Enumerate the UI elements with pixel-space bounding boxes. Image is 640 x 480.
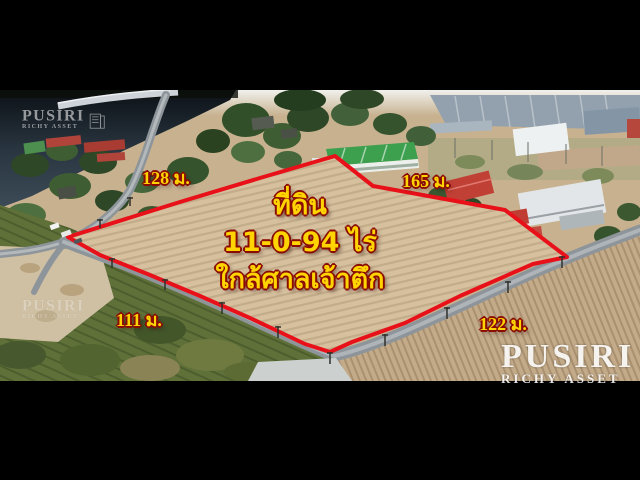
letterbox-bottom (0, 381, 640, 480)
letterbox-top (0, 0, 640, 90)
industrial-buildings (428, 95, 640, 184)
plot-caption-line2: 11-0-94 ไร่ (150, 224, 450, 261)
watermark-text: PUSIRI RICHY ASSET (501, 340, 634, 385)
watermark-tagline: RICHY ASSET (22, 123, 85, 129)
watermark-bottom-right: PUSIRI RICHY ASSET (501, 340, 640, 385)
plot-caption-line1: ที่ดิน (150, 187, 450, 224)
measurement-label-bottom-right: 122 ม. (479, 309, 527, 338)
measurement-label-bottom-left: 111 ม. (116, 305, 162, 334)
watermark-building-icon (87, 109, 106, 129)
listing-image: 128 ม. 165 ม. 111 ม. 122 ม. ที่ดิน 11-0-… (0, 0, 640, 480)
watermark-tagline: RICHY ASSET (501, 372, 634, 385)
watermark-tagline: RICHY ASSET (22, 313, 85, 319)
plot-caption: ที่ดิน 11-0-94 ไร่ ใกล้ศาลเจ้าตึก (150, 187, 450, 298)
plot-caption-line3: ใกล้ศาลเจ้าตึก (150, 261, 450, 298)
watermark-top-left: PUSIRI RICHY ASSET (22, 108, 105, 129)
watermark-brand: PUSIRI (501, 340, 634, 374)
watermark-mid-left: PUSIRI RICHY ASSET (22, 298, 85, 319)
